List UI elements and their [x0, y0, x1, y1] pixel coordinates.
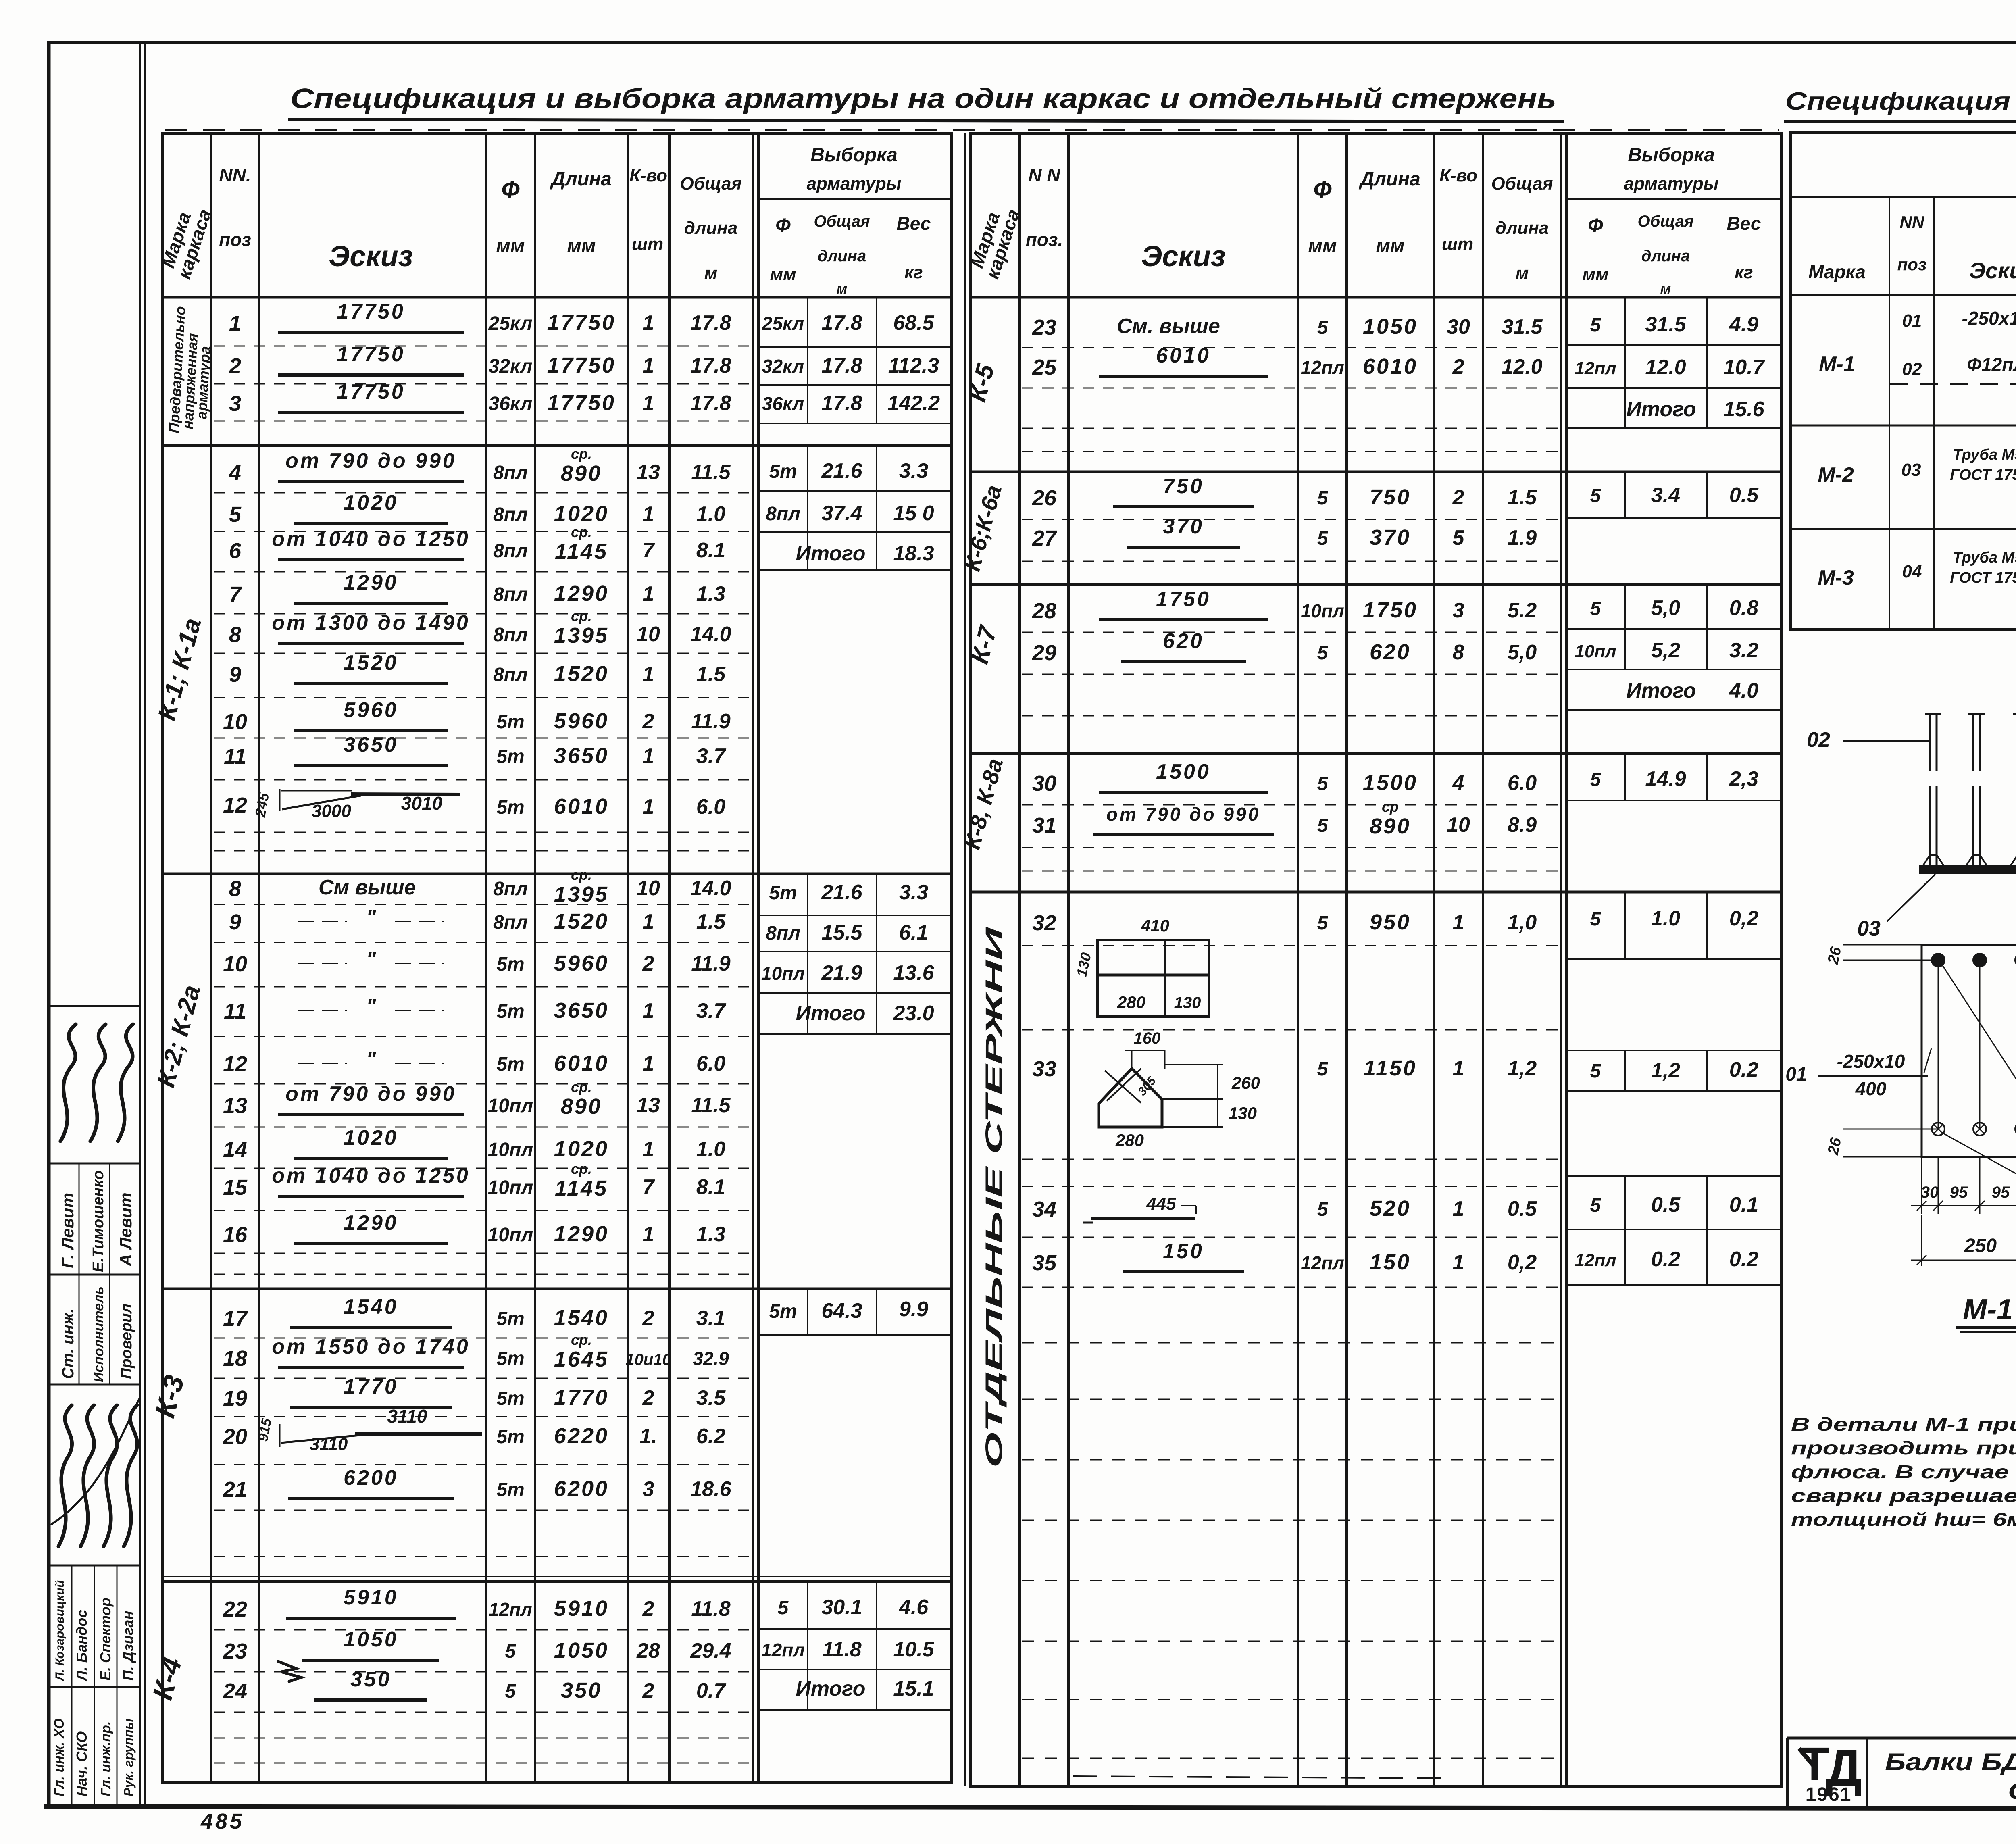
svg-text:1: 1 — [643, 354, 654, 377]
svg-text:1: 1 — [643, 744, 654, 768]
svg-text:1290: 1290 — [554, 1222, 609, 1246]
svg-text:22: 22 — [223, 1597, 247, 1621]
svg-text:2: 2 — [229, 354, 241, 378]
svg-text:130: 130 — [1174, 994, 1201, 1012]
svg-text:23: 23 — [223, 1639, 247, 1663]
svg-text:1: 1 — [1453, 1197, 1464, 1221]
svg-text:29.4: 29.4 — [690, 1639, 731, 1663]
svg-text:10.5: 10.5 — [893, 1638, 934, 1661]
svg-text:3650: 3650 — [554, 998, 609, 1023]
svg-text:7: 7 — [229, 582, 242, 606]
svg-text:5: 5 — [1317, 642, 1329, 664]
svg-text:17.8: 17.8 — [690, 311, 731, 335]
svg-text:0.8: 0.8 — [1729, 596, 1758, 620]
svg-text:10.7: 10.7 — [1723, 356, 1765, 379]
svg-text:17.8: 17.8 — [821, 392, 862, 415]
svg-text:5т: 5т — [496, 1479, 524, 1500]
svg-text:1.: 1. — [639, 1425, 657, 1448]
svg-text:шт: шт — [632, 234, 663, 254]
svg-text:4.0: 4.0 — [1729, 679, 1758, 702]
svg-text:11.8: 11.8 — [822, 1638, 861, 1661]
svg-text:1: 1 — [1453, 1251, 1464, 1274]
svg-text:5т: 5т — [496, 746, 524, 767]
svg-text:0.2: 0.2 — [1729, 1248, 1758, 1271]
svg-text:М-1: М-1 — [1819, 352, 1855, 376]
svg-text:31.5: 31.5 — [1645, 313, 1686, 336]
svg-text:1750: 1750 — [1363, 598, 1418, 622]
svg-text:95: 95 — [1992, 1183, 2010, 1201]
svg-text:13.6: 13.6 — [893, 961, 934, 985]
svg-text:Ф: Ф — [1313, 177, 1332, 203]
svg-text:8пл: 8пл — [493, 912, 528, 933]
svg-text:1: 1 — [643, 502, 654, 526]
svg-text:21.6: 21.6 — [821, 881, 862, 904]
svg-text:350: 350 — [561, 1678, 602, 1702]
svg-text:4.6: 4.6 — [899, 1596, 929, 1619]
svg-text:-250х10: -250х10 — [1837, 1051, 1905, 1072]
svg-text:15.6: 15.6 — [1723, 398, 1764, 421]
svg-text:6200: 6200 — [554, 1477, 609, 1501]
svg-text:Итого: Итого — [1627, 398, 1696, 421]
svg-text:мм: мм — [1308, 235, 1337, 256]
svg-text:К-во: К-во — [629, 166, 667, 185]
svg-text:11.9: 11.9 — [691, 952, 730, 975]
svg-text:32кл: 32кл — [762, 356, 804, 377]
svg-text:31.5: 31.5 — [1502, 315, 1543, 339]
svg-text:N N: N N — [1028, 165, 1060, 185]
svg-text:Л. Козаровицкий: Л. Козаровицкий — [53, 1580, 67, 1681]
svg-text:10пл: 10пл — [488, 1139, 533, 1161]
svg-text:мм: мм — [1582, 265, 1608, 284]
svg-text:8пл: 8пл — [493, 878, 528, 900]
svg-text:17750: 17750 — [547, 353, 616, 377]
svg-text:12: 12 — [223, 1052, 247, 1076]
svg-text:14: 14 — [223, 1138, 247, 1162]
svg-text:5: 5 — [1590, 1195, 1602, 1216]
svg-text:32: 32 — [1032, 911, 1056, 935]
svg-text:поз: поз — [219, 229, 251, 250]
svg-text:1395: 1395 — [554, 882, 609, 906]
svg-text:1050: 1050 — [1363, 315, 1418, 339]
svg-text:95: 95 — [1950, 1183, 1968, 1201]
svg-text:5,2: 5,2 — [1651, 639, 1680, 662]
svg-text:400: 400 — [1855, 1078, 1887, 1099]
svg-text:1050: 1050 — [344, 1628, 398, 1651]
svg-text:23: 23 — [1032, 315, 1056, 340]
svg-text:19: 19 — [223, 1386, 247, 1411]
svg-text:13: 13 — [637, 460, 660, 484]
svg-text:03: 03 — [1857, 917, 1881, 940]
svg-text:21: 21 — [223, 1477, 247, 1502]
svg-text:3650: 3650 — [554, 744, 609, 768]
svg-text:м: м — [1516, 263, 1529, 283]
svg-text:9.9: 9.9 — [899, 1298, 928, 1321]
svg-text:Длина: Длина — [550, 169, 612, 190]
svg-text:8.1: 8.1 — [696, 539, 725, 562]
svg-text:1.0: 1.0 — [696, 1138, 725, 1161]
svg-text:1290: 1290 — [344, 571, 398, 594]
svg-text:Рук. группы: Рук. группы — [121, 1719, 136, 1796]
svg-text:750: 750 — [1163, 475, 1204, 498]
svg-text:5: 5 — [1317, 317, 1329, 338]
svg-text:520: 520 — [1370, 1196, 1411, 1221]
svg-text:8пл: 8пл — [493, 462, 528, 483]
svg-text:ГОСТ 1753-53: ГОСТ 1753-53 — [1950, 467, 2016, 483]
svg-text:1: 1 — [643, 392, 654, 415]
svg-text:11.5: 11.5 — [691, 460, 731, 484]
svg-text:1500: 1500 — [1363, 771, 1418, 795]
svg-text:3.2: 3.2 — [1729, 639, 1758, 662]
svg-text:5: 5 — [1453, 526, 1465, 550]
svg-text:8.9: 8.9 — [1508, 813, 1537, 837]
svg-text:5т: 5т — [769, 461, 797, 482]
svg-text:5,0: 5,0 — [1651, 596, 1680, 620]
svg-text:5: 5 — [1590, 485, 1602, 506]
svg-text:9: 9 — [229, 910, 241, 934]
svg-text:890: 890 — [561, 1094, 602, 1119]
svg-text:30: 30 — [1447, 315, 1470, 339]
svg-text:1020: 1020 — [344, 491, 398, 515]
svg-text:1: 1 — [643, 1223, 654, 1246]
svg-text:1290: 1290 — [554, 581, 609, 606]
svg-text:1500: 1500 — [1156, 760, 1211, 783]
svg-text:1.5: 1.5 — [696, 910, 726, 933]
svg-text:0.5: 0.5 — [1651, 1193, 1681, 1217]
svg-text:толщиной hш= 6мм по периметру: толщиной hш= 6мм по периметру электродам… — [1791, 1509, 2016, 1530]
svg-text:Ф: Ф — [501, 177, 520, 203]
svg-text:5т: 5т — [496, 1426, 524, 1448]
svg-text:ср.: ср. — [571, 1079, 592, 1095]
svg-text:3650: 3650 — [344, 733, 398, 756]
svg-text:3000: 3000 — [312, 801, 351, 821]
svg-text:18: 18 — [223, 1346, 247, 1371]
svg-text:5: 5 — [1317, 1058, 1329, 1080]
svg-text:5: 5 — [1317, 488, 1329, 509]
svg-text:8пл: 8пл — [493, 624, 528, 646]
svg-text:8пл: 8пл — [493, 504, 528, 525]
svg-text:16: 16 — [223, 1223, 248, 1247]
svg-text:5910: 5910 — [554, 1596, 609, 1621]
svg-text:флюса. В случае отсутствия апп: флюса. В случае отсутствия аппаратов кон… — [1791, 1461, 2016, 1482]
svg-text:5910: 5910 — [344, 1586, 398, 1609]
svg-text:2: 2 — [642, 710, 654, 733]
svg-text:370: 370 — [1163, 515, 1204, 538]
svg-text:3.5: 3.5 — [696, 1386, 726, 1410]
svg-text:ср.: ср. — [571, 867, 592, 883]
svg-text:5960: 5960 — [554, 709, 609, 733]
svg-text:ср: ср — [1382, 798, 1399, 815]
svg-text:6: 6 — [229, 539, 242, 563]
svg-text:3.4: 3.4 — [1651, 483, 1680, 507]
svg-text:5: 5 — [778, 1597, 789, 1619]
svg-text:150: 150 — [1370, 1250, 1411, 1274]
svg-text:1750: 1750 — [1156, 588, 1211, 611]
svg-text:мм: мм — [1376, 235, 1404, 256]
svg-text:112.3: 112.3 — [888, 354, 939, 377]
svg-text:34: 34 — [1032, 1197, 1056, 1221]
svg-text:18.6: 18.6 — [690, 1477, 731, 1501]
svg-text:6010: 6010 — [554, 1051, 609, 1075]
svg-text:Е.Тимошенко: Е.Тимошенко — [90, 1170, 107, 1272]
svg-text:1: 1 — [229, 311, 241, 335]
svg-text:5т: 5т — [496, 797, 524, 818]
svg-text:мм: мм — [496, 235, 525, 256]
svg-text:ср.: ср. — [571, 1331, 592, 1348]
svg-text:шт: шт — [1442, 234, 1473, 254]
svg-text:64.3: 64.3 — [821, 1299, 862, 1323]
svg-text:10пл: 10пл — [1574, 642, 1616, 661]
svg-text:2: 2 — [642, 1306, 654, 1330]
svg-text:": " — [366, 906, 377, 929]
svg-text:17.8: 17.8 — [690, 392, 731, 415]
svg-text:0.5: 0.5 — [1508, 1197, 1537, 1221]
svg-text:А Левит: А Левит — [116, 1192, 135, 1267]
svg-text:Спецификации стали: Спецификации стали — [2008, 1778, 2016, 1804]
svg-text:Эскиз: Эскиз — [1969, 258, 2016, 283]
svg-text:36кл: 36кл — [762, 393, 804, 414]
svg-text:Длина: Длина — [1358, 169, 1420, 190]
svg-text:950: 950 — [1370, 910, 1411, 934]
svg-text:": " — [366, 948, 377, 971]
svg-text:Спецификация стали на одну шту: Спецификация стали на одну штуку каждой … — [1785, 88, 2016, 115]
svg-text:17750: 17750 — [337, 380, 405, 404]
svg-text:0,2: 0,2 — [1729, 907, 1758, 930]
svg-text:Труба М57х3: Труба М57х3 — [1953, 549, 2016, 566]
svg-text:6.1: 6.1 — [899, 921, 928, 944]
svg-text:370: 370 — [1370, 525, 1411, 550]
svg-text:5: 5 — [229, 502, 242, 527]
svg-text:М-3: М-3 — [1818, 566, 1854, 590]
svg-text:18.3: 18.3 — [893, 542, 934, 565]
svg-text:37.4: 37.4 — [821, 502, 862, 525]
svg-text:280: 280 — [1117, 993, 1145, 1012]
svg-text:13: 13 — [637, 1094, 660, 1117]
svg-text:2: 2 — [642, 1679, 654, 1702]
svg-text:длина: длина — [684, 218, 738, 238]
svg-text:25: 25 — [1032, 355, 1057, 379]
svg-text:68.5: 68.5 — [893, 311, 934, 335]
svg-text:Ст. инж.: Ст. инж. — [59, 1309, 77, 1379]
svg-text:1: 1 — [643, 795, 654, 819]
svg-text:Общая: Общая — [814, 213, 870, 230]
svg-text:3110: 3110 — [310, 1434, 348, 1454]
svg-text:35: 35 — [1032, 1251, 1057, 1275]
svg-text:длина: длина — [818, 247, 866, 265]
svg-text:6.0: 6.0 — [696, 1052, 725, 1075]
svg-text:36кл: 36кл — [489, 393, 533, 415]
svg-text:23.0: 23.0 — [893, 1002, 934, 1025]
svg-text:длина: длина — [1495, 218, 1549, 238]
svg-text:1961: 1961 — [1806, 1784, 1852, 1805]
svg-text:мм: мм — [567, 235, 596, 256]
svg-text:6220: 6220 — [554, 1424, 609, 1448]
svg-text:Нач. СКО: Нач. СКО — [73, 1731, 90, 1796]
svg-text:0.7: 0.7 — [696, 1679, 726, 1702]
svg-text:Ф12пл: Ф12пл — [1967, 354, 2016, 375]
svg-text:5.2: 5.2 — [1508, 599, 1537, 622]
svg-text:11.5: 11.5 — [691, 1094, 731, 1117]
svg-text:5т: 5т — [769, 1301, 797, 1322]
svg-text:м: м — [837, 280, 848, 297]
svg-text:5: 5 — [1590, 769, 1602, 790]
svg-text:8пл: 8пл — [493, 664, 528, 686]
svg-text:5т: 5т — [496, 1054, 524, 1075]
svg-text:5: 5 — [1590, 598, 1602, 619]
svg-text:620: 620 — [1163, 629, 1204, 653]
svg-text:мм: мм — [770, 265, 796, 284]
svg-text:14.0: 14.0 — [690, 877, 731, 900]
svg-text:10пл: 10пл — [761, 963, 805, 984]
svg-text:1: 1 — [1453, 1057, 1464, 1080]
svg-text:1,0: 1,0 — [1508, 911, 1537, 934]
svg-text:5т: 5т — [496, 1388, 524, 1409]
svg-text:1.3: 1.3 — [696, 582, 725, 606]
svg-text:сварки разрешается приварка ду: сварки разрешается приварка дуговой свар… — [1791, 1485, 2016, 1506]
svg-text:10: 10 — [1447, 813, 1470, 837]
svg-text:Марка: Марка — [1808, 261, 1866, 282]
svg-text:1.5: 1.5 — [1508, 486, 1537, 509]
svg-text:NN.: NN. — [219, 165, 251, 185]
svg-text:15.1: 15.1 — [893, 1677, 934, 1700]
svg-text:5,0: 5,0 — [1508, 641, 1537, 664]
svg-text:17750: 17750 — [547, 391, 616, 415]
svg-text:2,3: 2,3 — [1729, 767, 1758, 791]
svg-text:1645: 1645 — [554, 1347, 609, 1371]
svg-text:1: 1 — [643, 910, 654, 933]
svg-text:1050: 1050 — [554, 1638, 609, 1663]
svg-text:12.0: 12.0 — [1502, 355, 1542, 379]
svg-text:10: 10 — [223, 710, 247, 734]
svg-text:2: 2 — [642, 1386, 654, 1410]
svg-text:Эскиз: Эскиз — [329, 240, 413, 273]
svg-text:Л. Бандос: Л. Бандос — [73, 1610, 90, 1682]
svg-text:03: 03 — [1901, 460, 1921, 480]
svg-text:01: 01 — [1785, 1064, 1807, 1085]
svg-text:5т: 5т — [496, 1348, 524, 1369]
svg-text:1020: 1020 — [554, 1137, 609, 1161]
svg-text:Труба М57х3: Труба М57х3 — [1953, 446, 2016, 463]
svg-text:28: 28 — [1032, 599, 1056, 623]
svg-text:1,2: 1,2 — [1651, 1059, 1680, 1082]
svg-text:8: 8 — [229, 623, 241, 647]
svg-text:1: 1 — [1453, 911, 1464, 934]
svg-text:17: 17 — [223, 1306, 248, 1331]
svg-text:12пл: 12пл — [1301, 1252, 1344, 1273]
svg-text:15 0: 15 0 — [893, 502, 934, 525]
svg-text:5: 5 — [1317, 773, 1329, 794]
svg-text:750: 750 — [1370, 485, 1411, 509]
svg-text:31: 31 — [1032, 813, 1056, 838]
svg-text:150: 150 — [1163, 1240, 1204, 1263]
svg-text:1520: 1520 — [554, 662, 609, 686]
svg-text:25кл: 25кл — [488, 313, 533, 334]
svg-text:Вес: Вес — [897, 213, 931, 234]
svg-text:3.3: 3.3 — [899, 881, 928, 904]
svg-text:10: 10 — [637, 623, 660, 646]
svg-text:10пл: 10пл — [488, 1095, 533, 1117]
svg-text:5т: 5т — [496, 954, 524, 975]
svg-text:5: 5 — [505, 1641, 516, 1662]
svg-text:17750: 17750 — [547, 310, 616, 335]
svg-text:17.8: 17.8 — [690, 354, 731, 377]
svg-text:12: 12 — [223, 793, 247, 817]
svg-text:М-2: М-2 — [1818, 463, 1854, 487]
svg-text:5: 5 — [1317, 1199, 1329, 1220]
svg-text:1.3: 1.3 — [696, 1223, 725, 1246]
svg-text:от 790 до 990: от 790 до 990 — [285, 1082, 456, 1106]
svg-text:1.9: 1.9 — [1508, 526, 1537, 550]
svg-text:1145: 1145 — [555, 1176, 608, 1200]
svg-text:Спецификация и выборка арматур: Спецификация и выборка арматуры на один … — [290, 83, 1556, 114]
svg-text:ОТДЕЛЬНЫЕ СТЕРЖНИ: ОТДЕЛЬНЫЕ СТЕРЖНИ — [981, 927, 1007, 1468]
svg-text:0.1: 0.1 — [1729, 1193, 1758, 1217]
svg-text:14.0: 14.0 — [690, 623, 731, 646]
svg-text:1: 1 — [643, 1052, 654, 1075]
svg-text:02: 02 — [1902, 359, 1922, 379]
svg-text:Эскиз: Эскиз — [1141, 240, 1225, 273]
svg-text:См. выше: См. выше — [1117, 315, 1220, 338]
svg-text:5: 5 — [1590, 1061, 1602, 1082]
svg-text:1: 1 — [643, 582, 654, 606]
svg-text:ср.: ср. — [571, 608, 592, 624]
svg-text:130: 130 — [1229, 1104, 1257, 1123]
svg-text:1: 1 — [643, 1138, 654, 1161]
svg-text:1.0: 1.0 — [1651, 907, 1680, 930]
svg-text:7: 7 — [643, 539, 655, 562]
svg-text:30: 30 — [1921, 1183, 1939, 1201]
svg-text:410: 410 — [1141, 916, 1169, 935]
svg-text:3.7: 3.7 — [696, 744, 726, 768]
svg-text:15: 15 — [223, 1175, 248, 1200]
svg-text:3.1: 3.1 — [696, 1306, 725, 1330]
svg-text:5т: 5т — [496, 1001, 524, 1022]
svg-text:П. Дзиган: П. Дзиган — [120, 1611, 136, 1681]
svg-text:2: 2 — [642, 1597, 654, 1621]
svg-text:890: 890 — [561, 461, 602, 485]
svg-text:21.9: 21.9 — [821, 961, 862, 985]
svg-text:6.2: 6.2 — [696, 1425, 725, 1448]
svg-text:5т: 5т — [496, 711, 524, 733]
svg-text:11.9: 11.9 — [691, 710, 730, 733]
svg-text:1145: 1145 — [555, 540, 608, 564]
svg-text:5т: 5т — [769, 882, 797, 904]
svg-text:Гл. инж. ХО: Гл. инж. ХО — [52, 1718, 67, 1796]
svg-text:1: 1 — [643, 311, 654, 335]
svg-text:Г. Левит: Г. Левит — [58, 1193, 77, 1268]
svg-text:1290: 1290 — [344, 1211, 398, 1235]
svg-text:М-1: М-1 — [1963, 1294, 2013, 1326]
svg-text:Гл. инж.пр.: Гл. инж.пр. — [98, 1721, 114, 1796]
svg-text:Выборка: Выборка — [810, 144, 898, 166]
svg-text:0.2: 0.2 — [1729, 1058, 1758, 1081]
svg-text:02: 02 — [1807, 728, 1830, 752]
svg-text:Исполнитель: Исполнитель — [91, 1286, 106, 1382]
svg-text:1395: 1395 — [554, 623, 609, 648]
svg-text:10: 10 — [223, 952, 247, 976]
svg-text:кг: кг — [1735, 263, 1753, 282]
svg-text:6010: 6010 — [554, 794, 609, 819]
svg-text:3: 3 — [643, 1477, 654, 1501]
svg-text:1.0: 1.0 — [696, 502, 725, 526]
svg-text:См выше: См выше — [319, 876, 416, 899]
svg-text:12пл: 12пл — [1301, 357, 1344, 378]
svg-text:12пл: 12пл — [489, 1599, 532, 1620]
svg-text:от 790 до 990: от 790 до 990 — [285, 449, 456, 473]
svg-text:10и10: 10и10 — [625, 1351, 671, 1369]
svg-text:1020: 1020 — [554, 502, 609, 526]
svg-text:485: 485 — [200, 1809, 244, 1834]
svg-text:26: 26 — [1032, 486, 1057, 510]
